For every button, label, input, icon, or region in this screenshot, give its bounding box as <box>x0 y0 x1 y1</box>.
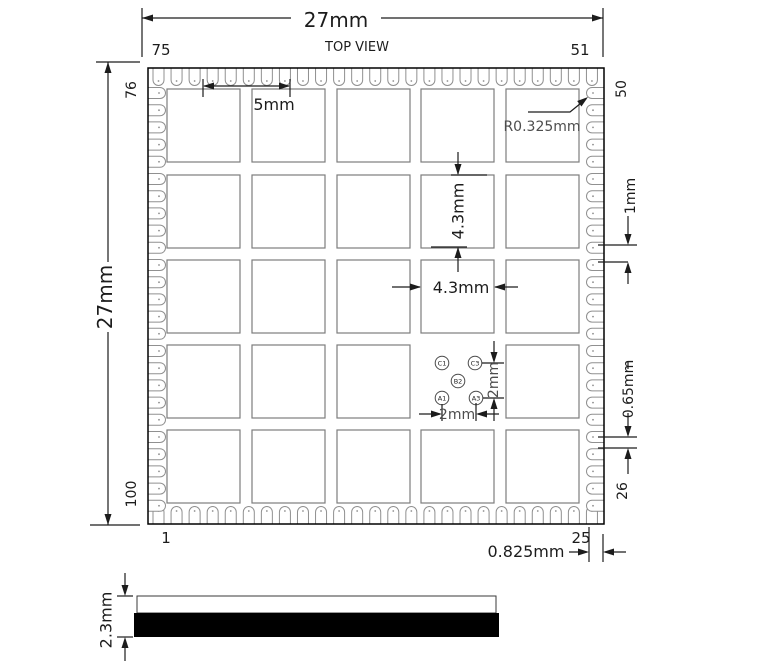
edge-pad-center-dot <box>592 247 594 249</box>
pin-number-right-bottom: 26 <box>615 482 631 500</box>
edge-pad-center-dot <box>158 230 160 232</box>
edge-pad <box>148 260 166 271</box>
edge-pad-center-dot <box>592 92 594 94</box>
edge-pad-center-dot <box>158 402 160 404</box>
edge-pad-center-dot <box>483 80 485 82</box>
edge-pad <box>587 156 605 167</box>
dimension-arrowhead <box>578 549 589 556</box>
grid-pad <box>421 89 494 162</box>
edge-pad-center-dot <box>374 510 376 512</box>
pin-number-left-bottom: 100 <box>124 481 140 508</box>
edge-pad <box>171 507 182 525</box>
grid-pads-group <box>167 89 579 503</box>
edge-pad <box>514 68 525 86</box>
edge-pad-center-dot <box>483 510 485 512</box>
edge-pad <box>297 68 308 86</box>
edge-pad-center-dot <box>158 247 160 249</box>
edge-pad <box>148 432 166 443</box>
edge-pad-center-dot <box>392 80 394 82</box>
edge-pad <box>148 191 166 202</box>
edge-pad <box>148 174 166 185</box>
edge-pad <box>587 242 605 253</box>
edge-pad <box>148 363 166 374</box>
edge-pad-center-dot <box>176 80 178 82</box>
top-view-title: TOP VIEW <box>324 40 389 55</box>
edge-pad <box>207 68 218 86</box>
edge-pad-center-dot <box>592 316 594 318</box>
edge-pad-center-dot <box>212 80 214 82</box>
edge-pad-center-dot <box>302 510 304 512</box>
edge-pad <box>496 507 507 525</box>
dimension-arrowhead <box>105 62 112 73</box>
edge-pad <box>148 242 166 253</box>
edge-pad <box>478 68 489 86</box>
grid-pad <box>506 175 579 248</box>
dimension-arrowhead <box>494 284 505 291</box>
edge-pad <box>587 294 605 305</box>
edge-pad-center-dot <box>555 80 557 82</box>
edge-pad <box>148 294 166 305</box>
edge-pad-center-dot <box>592 471 594 473</box>
edge-pad <box>148 88 166 99</box>
edge-pad <box>587 105 605 116</box>
edge-pad-center-dot <box>392 510 394 512</box>
ball-label-b2: B2 <box>454 377 463 385</box>
pin-number-right-top: 50 <box>614 80 630 98</box>
edge-pad <box>587 363 605 374</box>
edge-pad <box>148 105 166 116</box>
edge-pad-center-dot <box>555 510 557 512</box>
edge-pad-center-dot <box>158 436 160 438</box>
edge-pad <box>370 507 381 525</box>
edge-pad-center-dot <box>573 510 575 512</box>
edge-pad <box>148 277 166 288</box>
edge-pad <box>352 68 363 86</box>
edge-pad <box>442 68 453 86</box>
edge-pad-center-dot <box>158 213 160 215</box>
pin-number-left-top: 76 <box>124 81 140 99</box>
edge-pad-center-dot <box>320 80 322 82</box>
dim-ball-pitch-horizontal-label: 2mm <box>439 407 475 423</box>
edge-pad <box>478 507 489 525</box>
edge-pad-center-dot <box>338 80 340 82</box>
edge-pad <box>148 483 166 494</box>
edge-pad-center-dot <box>374 80 376 82</box>
edge-pad <box>496 68 507 86</box>
edge-pad-center-dot <box>158 333 160 335</box>
grid-pad <box>167 345 240 418</box>
edge-pad-center-dot <box>592 367 594 369</box>
edge-pad-center-dot <box>284 80 286 82</box>
edge-pad-center-dot <box>410 80 412 82</box>
grid-pad <box>252 345 325 418</box>
edge-pad-center-dot <box>158 161 160 163</box>
edge-pad-center-dot <box>266 80 268 82</box>
dimension-arrowhead <box>625 262 632 273</box>
edge-pad-center-dot <box>592 505 594 507</box>
edge-pad-center-dot <box>519 80 521 82</box>
edge-pad-center-dot <box>592 453 594 455</box>
edge-pad <box>587 260 605 271</box>
side-view <box>134 596 499 637</box>
edge-pad <box>334 507 345 525</box>
edge-pad-center-dot <box>573 80 575 82</box>
edge-pad <box>586 68 597 86</box>
edge-pad <box>148 225 166 236</box>
edge-pad <box>279 507 290 525</box>
edge-pad <box>148 466 166 477</box>
edge-pad-center-dot <box>158 92 160 94</box>
grid-pad <box>337 345 410 418</box>
edge-pad <box>587 277 605 288</box>
grid-pad <box>337 430 410 503</box>
edge-pad <box>189 507 200 525</box>
dim-thickness-label: 2.3mm <box>97 592 116 649</box>
edge-pad-center-dot <box>194 80 196 82</box>
dim-overall-width-label: 27mm <box>304 8 368 32</box>
dimension-arrowhead <box>476 411 487 418</box>
edge-pad <box>568 507 579 525</box>
edge-pad-center-dot <box>592 161 594 163</box>
edge-pad <box>148 397 166 408</box>
dimension-arrowhead <box>592 15 603 22</box>
dimension-arrowhead <box>625 426 632 437</box>
dim-grid-pad-width-label: 4.3mm <box>433 278 490 297</box>
edge-pad-center-dot <box>592 109 594 111</box>
edge-pad <box>148 414 166 425</box>
edge-pad-center-dot <box>248 510 250 512</box>
edge-pad-center-dot <box>537 510 539 512</box>
dimension-arrowhead <box>455 247 462 258</box>
edge-pad-center-dot <box>592 213 594 215</box>
edge-pad <box>587 174 605 185</box>
edge-pad-center-dot <box>465 510 467 512</box>
edge-pad-center-dot <box>592 264 594 266</box>
grid-pad <box>506 345 579 418</box>
drawing-canvas: 27mm TOP VIEW 75 51 76 50 100 26 1 25 5m… <box>0 0 763 668</box>
edge-pad-center-dot <box>429 510 431 512</box>
edge-pad <box>297 507 308 525</box>
edge-pad-center-dot <box>592 436 594 438</box>
edge-pad-center-dot <box>592 195 594 197</box>
edge-pad-center-dot <box>230 510 232 512</box>
edge-pad-center-dot <box>158 281 160 283</box>
edge-pad <box>352 507 363 525</box>
pin-number-top-left: 75 <box>151 41 170 59</box>
edge-pad <box>550 507 561 525</box>
edge-pad <box>148 500 166 511</box>
edge-pad <box>406 507 417 525</box>
edge-pad <box>587 311 605 322</box>
edge-pad-center-dot <box>592 281 594 283</box>
edge-pad-center-dot <box>158 367 160 369</box>
grid-pad <box>252 260 325 333</box>
dimension-arrowhead <box>625 234 632 245</box>
edge-pad-center-dot <box>338 510 340 512</box>
edge-pad <box>153 68 164 86</box>
edge-pad-center-dot <box>592 299 594 301</box>
edge-pad <box>370 68 381 86</box>
dim-edge-clearance-label: 0.825mm <box>488 542 565 561</box>
ball-label-a3: A3 <box>472 394 481 402</box>
edge-pad <box>424 68 435 86</box>
dimension-arrowhead <box>122 637 129 648</box>
edge-pad-center-dot <box>592 127 594 129</box>
edge-pad-center-dot <box>592 144 594 146</box>
edge-pad-center-dot <box>158 178 160 180</box>
edge-pad-center-dot <box>592 350 594 352</box>
edge-pad-center-dot <box>356 80 358 82</box>
dimension-arrowhead <box>625 448 632 459</box>
edge-pad-center-dot <box>158 144 160 146</box>
edge-pad <box>587 397 605 408</box>
dim-grid-pad-height-label: 4.3mm <box>449 183 468 240</box>
grid-pad <box>252 430 325 503</box>
edge-pad <box>587 88 605 99</box>
edge-pad <box>388 507 399 525</box>
ball-label-c1: C1 <box>438 359 447 367</box>
edge-pad-center-dot <box>356 510 358 512</box>
edge-pad-center-dot <box>158 505 160 507</box>
edge-pad <box>243 507 254 525</box>
edge-pad-center-dot <box>302 80 304 82</box>
edge-pad <box>514 507 525 525</box>
edge-pad <box>388 68 399 86</box>
grid-pad <box>167 89 240 162</box>
edge-pad-center-dot <box>591 80 593 82</box>
dimension-arrowhead <box>455 164 462 175</box>
edge-pad <box>316 68 327 86</box>
edge-pad-center-dot <box>320 510 322 512</box>
dimension-arrowhead <box>410 284 421 291</box>
edge-pad-center-dot <box>158 80 160 82</box>
ball-label-a1: A1 <box>438 394 447 402</box>
side-view-body <box>134 613 499 637</box>
edge-pad-center-dot <box>519 510 521 512</box>
edge-pad-center-dot <box>447 510 449 512</box>
dim-edge-pad-width-label: 0.65mm <box>621 360 637 418</box>
edge-pad-center-dot <box>158 350 160 352</box>
edge-pad-center-dot <box>194 510 196 512</box>
pin-number-bottom-right: 25 <box>571 529 590 547</box>
dimension-arrowhead <box>491 352 498 363</box>
edge-pad <box>587 346 605 357</box>
edge-pad <box>148 208 166 219</box>
dim-overall-height-label: 27mm <box>93 265 117 329</box>
edge-pad <box>550 68 561 86</box>
edge-pad <box>424 507 435 525</box>
edge-pad <box>568 68 579 86</box>
grid-pad <box>506 260 579 333</box>
edge-pad <box>460 507 471 525</box>
edge-pad <box>148 328 166 339</box>
edge-pad <box>171 68 182 86</box>
edge-pad-center-dot <box>230 80 232 82</box>
edge-pad-center-dot <box>592 333 594 335</box>
edge-pad <box>334 68 345 86</box>
dim-corner-radius-label: R0.325mm <box>503 119 580 135</box>
edge-pad <box>189 68 200 86</box>
edge-pad-center-dot <box>592 230 594 232</box>
edge-pad-center-dot <box>592 419 594 421</box>
edge-pad-center-dot <box>158 264 160 266</box>
edge-pad <box>261 507 272 525</box>
dimension-arrowhead <box>105 514 112 525</box>
edge-pad-center-dot <box>410 510 412 512</box>
edge-pad <box>587 208 605 219</box>
edge-pad-center-dot <box>592 178 594 180</box>
edge-pad-center-dot <box>176 510 178 512</box>
grid-pad <box>421 430 494 503</box>
edge-pad-center-dot <box>592 385 594 387</box>
edge-pad <box>587 191 605 202</box>
edge-pad <box>587 225 605 236</box>
edge-pad <box>261 68 272 86</box>
pin-number-top-right: 51 <box>570 41 589 59</box>
dimension-arrowhead <box>603 549 614 556</box>
dim-grid-pitch-label: 5mm <box>253 95 294 114</box>
edge-pad-center-dot <box>158 471 160 473</box>
grid-pad <box>337 175 410 248</box>
edge-pad <box>587 414 605 425</box>
edge-pad <box>442 507 453 525</box>
edge-pad <box>279 68 290 86</box>
edge-pad <box>587 449 605 460</box>
edge-pad-center-dot <box>501 510 503 512</box>
edge-pad <box>532 68 543 86</box>
edge-pad <box>148 346 166 357</box>
edge-pad <box>207 507 218 525</box>
edge-pad-center-dot <box>158 109 160 111</box>
edge-pad <box>587 500 605 511</box>
edge-pad-center-dot <box>212 510 214 512</box>
edge-pad-center-dot <box>284 510 286 512</box>
edge-pad-center-dot <box>429 80 431 82</box>
edge-pad-center-dot <box>501 80 503 82</box>
edge-pad <box>148 139 166 150</box>
ball-label-c3: C3 <box>471 359 480 367</box>
edge-pad-center-dot <box>592 488 594 490</box>
dimension-arrowhead <box>491 398 498 409</box>
edge-pad-center-dot <box>592 402 594 404</box>
edge-pad-center-dot <box>248 80 250 82</box>
edge-pad <box>148 311 166 322</box>
edge-pad-center-dot <box>266 510 268 512</box>
edge-pad <box>460 68 471 86</box>
grid-pad <box>337 260 410 333</box>
edge-pad <box>532 507 543 525</box>
dimension-arrowhead <box>142 15 153 22</box>
pin-number-bottom-left: 1 <box>161 529 171 547</box>
dim-edge-pad-pitch-label: 1mm <box>623 178 639 214</box>
edge-pad <box>587 483 605 494</box>
dim-ball-pitch-vertical-label: 2mm <box>486 362 502 398</box>
edge-pad-center-dot <box>158 195 160 197</box>
edge-pad <box>243 68 254 86</box>
edge-pad-center-dot <box>158 316 160 318</box>
dimension-arrowhead <box>122 585 129 596</box>
edge-pad-center-dot <box>537 80 539 82</box>
edge-pad-center-dot <box>158 299 160 301</box>
edge-pad <box>316 507 327 525</box>
edge-pad-center-dot <box>465 80 467 82</box>
grid-pad <box>252 175 325 248</box>
edge-pad <box>587 380 605 391</box>
edge-pad-center-dot <box>158 453 160 455</box>
edge-pad-center-dot <box>447 80 449 82</box>
edge-pad-center-dot <box>158 419 160 421</box>
edge-pad <box>148 449 166 460</box>
grid-pad <box>167 260 240 333</box>
edge-pad <box>587 466 605 477</box>
edge-pad <box>148 122 165 133</box>
edge-pad <box>148 156 166 167</box>
edge-pad <box>406 68 417 86</box>
side-view-top-layer <box>137 596 496 613</box>
edge-pad-center-dot <box>158 488 160 490</box>
grid-pad <box>506 430 579 503</box>
grid-pad <box>167 175 240 248</box>
edge-pad <box>225 68 236 86</box>
edge-pad <box>587 139 605 150</box>
edge-pad <box>587 328 605 339</box>
edge-pad <box>587 122 604 133</box>
grid-pad <box>167 430 240 503</box>
edge-pad <box>225 507 236 525</box>
edge-pad-center-dot <box>158 385 160 387</box>
grid-pad <box>337 89 410 162</box>
edge-pad <box>148 380 166 391</box>
technical-drawing: 27mm TOP VIEW 75 51 76 50 100 26 1 25 5m… <box>0 0 763 668</box>
edge-pad-center-dot <box>158 127 160 129</box>
